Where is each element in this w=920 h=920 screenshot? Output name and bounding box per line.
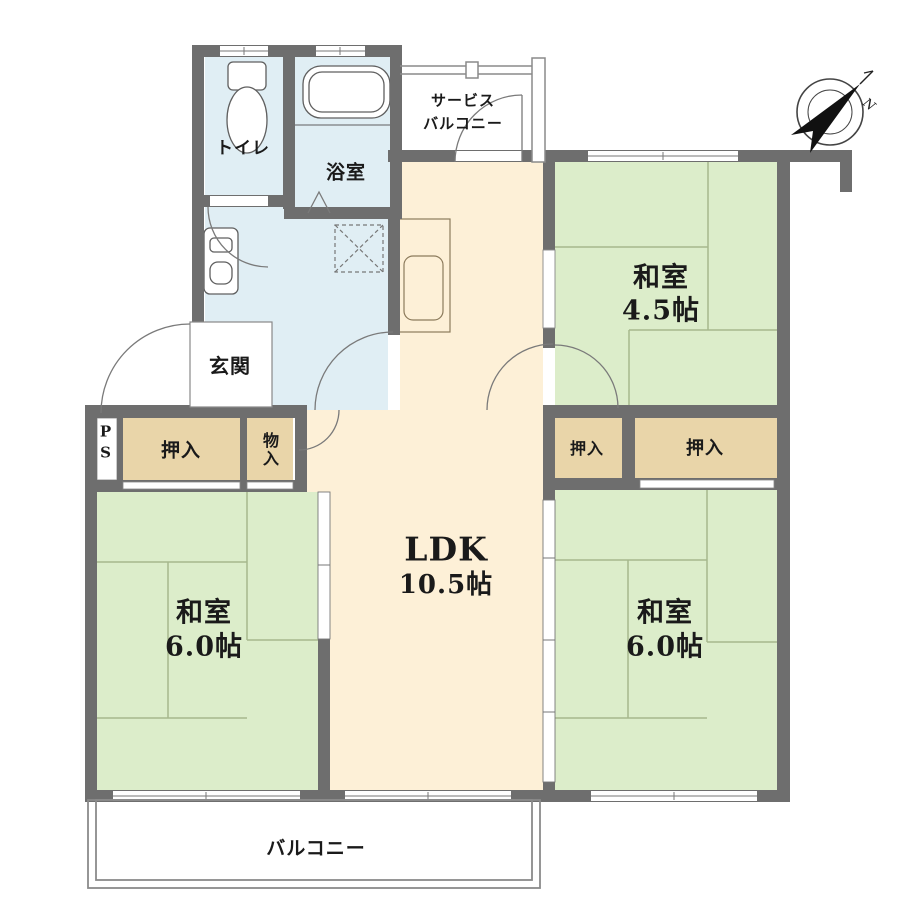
japanese-room-45-size: 4.5帖 — [622, 298, 700, 325]
closet-west-label: 押入 — [161, 442, 201, 461]
ldk-lower — [305, 410, 543, 790]
service-balcony-label-1: サービス — [431, 94, 495, 109]
storage-label: 物入 — [261, 432, 277, 468]
closet-east-small-label: 押入 — [570, 441, 604, 457]
floorplan: N トイレ 浴室 サービス バルコニー 和室 4.5帖 玄関 P S 押入 物入… — [0, 0, 920, 920]
north-letter: N — [859, 95, 879, 115]
entrance-door-arc — [101, 324, 190, 413]
japanese-room-east-size: 6.0帖 — [626, 634, 704, 661]
closet-front — [247, 482, 293, 489]
compass-north-icon: N — [791, 71, 878, 153]
floorplan-drawing: N — [0, 0, 920, 920]
ldk-size: 10.5帖 — [399, 572, 493, 598]
japanese-room-west-name: 和室 — [176, 600, 232, 627]
ldk-upper — [399, 162, 543, 410]
pipe-space-label-s: S — [100, 446, 112, 461]
window-icon — [588, 151, 738, 161]
japanese-room-45-name: 和室 — [633, 265, 689, 292]
balcony-label: バルコニー — [266, 840, 366, 859]
hallway-2 — [284, 219, 388, 410]
ldk-name: LDK — [404, 533, 488, 566]
closet-front — [640, 480, 774, 488]
pipe-space-label-p: P — [100, 425, 112, 440]
toilet-label: トイレ — [216, 141, 270, 158]
entrance-label: 玄関 — [209, 356, 251, 376]
closet-front — [123, 482, 240, 489]
service-balcony-outline — [400, 58, 545, 162]
closet-east-large-label: 押入 — [686, 440, 724, 458]
sliding-door — [543, 250, 555, 328]
japanese-room-east-name: 和室 — [637, 600, 693, 627]
bath-label: 浴室 — [326, 164, 366, 183]
japanese-room-west-size: 6.0帖 — [165, 634, 243, 661]
washbasin-icon — [204, 228, 238, 294]
service-balcony-label-2: バルコニー — [423, 117, 503, 132]
